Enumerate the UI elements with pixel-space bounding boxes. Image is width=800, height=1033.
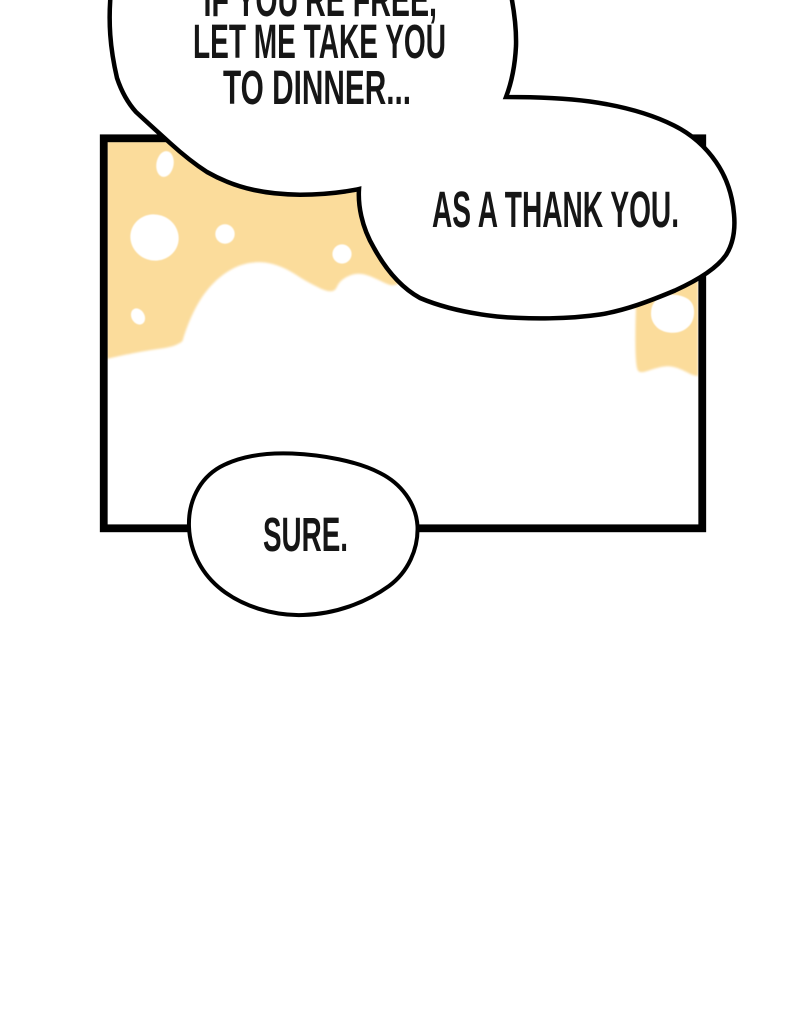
svg-text:SURE.: SURE. bbox=[263, 509, 348, 562]
svg-text:AS A THANK YOU.: AS A THANK YOU. bbox=[432, 181, 679, 238]
svg-text:TO DINNER...: TO DINNER... bbox=[223, 62, 411, 115]
